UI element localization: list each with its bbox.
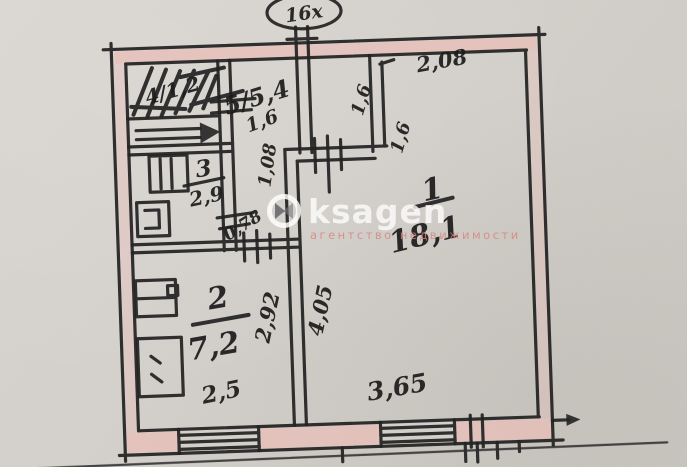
bathroom-fixtures [135, 155, 190, 237]
dim-2-5: 2,5 [198, 375, 244, 410]
kitchen-fixtures [135, 279, 183, 396]
scanned-floor-plan-page: 16х [0, 0, 687, 467]
arrow-symbol [136, 122, 221, 146]
dim-1-6-wall-lower: 1,6 [387, 119, 416, 155]
dim-4-05: 4,05 [302, 283, 337, 338]
room2-number: 2 [204, 279, 232, 317]
dim-3-65: 3,65 [365, 368, 430, 407]
floor-plan-drawing: 16х [0, 0, 687, 467]
room2-fraction-line [193, 315, 249, 325]
room1-area: 18,1 [385, 209, 464, 261]
dim-2-92: 2,92 [249, 290, 284, 346]
dim-1-08: 1,08 [254, 142, 281, 189]
room2-area: 7,2 [185, 325, 242, 369]
apartment-number-label: 16х [284, 0, 325, 27]
